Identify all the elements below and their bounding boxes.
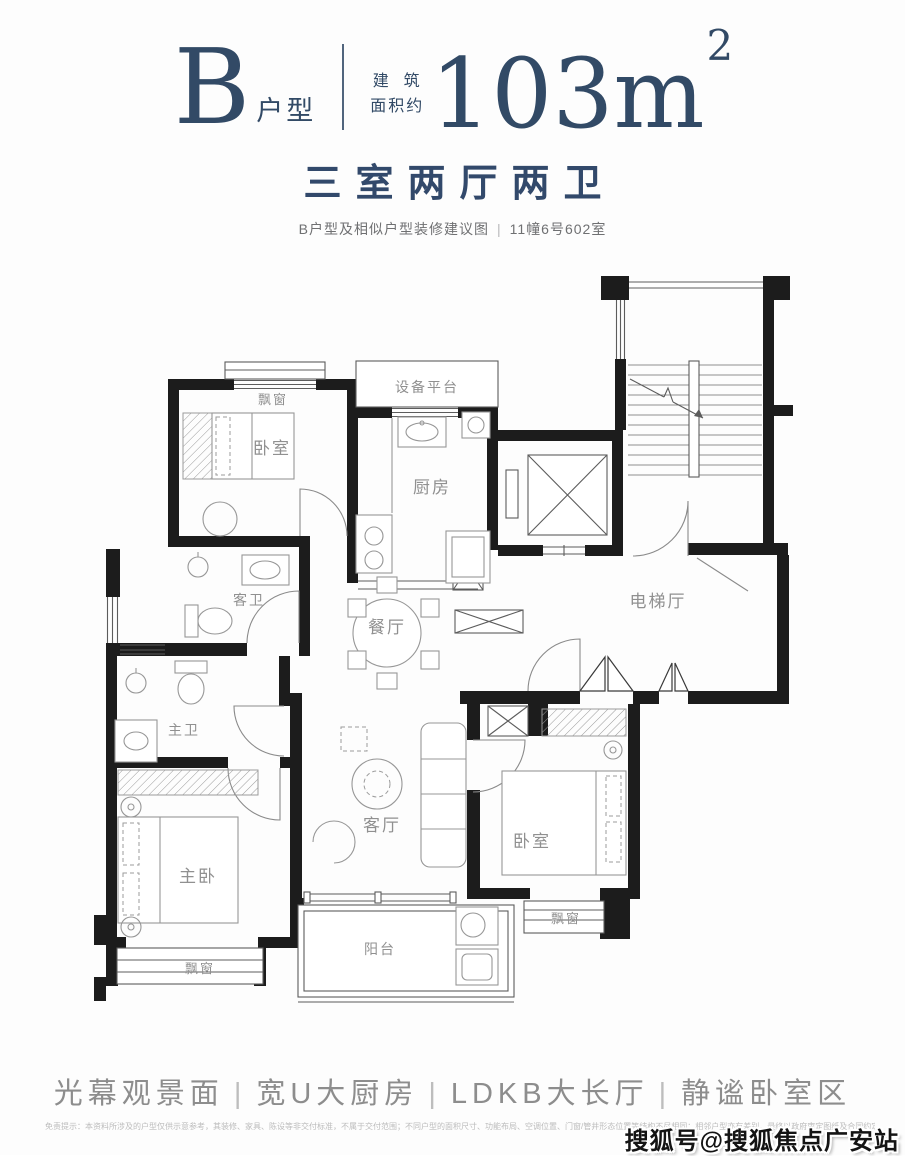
area-block: 建 筑 面积约 103m2 bbox=[370, 55, 731, 134]
chair-tl bbox=[203, 502, 237, 536]
wardrobe-tl bbox=[183, 413, 212, 479]
room-label-master-bed: 主卧 bbox=[179, 867, 217, 886]
watermark-sohu: 搜狐号@搜狐焦点广安站 bbox=[625, 1121, 899, 1156]
area-prefix: 建 筑 面积约 bbox=[370, 70, 424, 120]
tagline-item: 静谧卧室区 bbox=[681, 1078, 851, 1110]
room-label-bedroom-tl: 卧室 bbox=[253, 439, 291, 458]
bed-master bbox=[118, 817, 238, 923]
area-superscript: 2 bbox=[706, 21, 733, 70]
armchair bbox=[313, 821, 355, 863]
floor-plan: 飘窗 卧室 设备平台 厨房 客卫 餐厅 电梯厅 主卫 主卧 客厅 卧室 飘窗 飘… bbox=[0, 268, 905, 1015]
bed-right bbox=[502, 771, 626, 875]
wardrobe-right bbox=[542, 709, 626, 736]
tagline-divider: | bbox=[418, 1078, 451, 1110]
fridge bbox=[446, 531, 490, 583]
boiler bbox=[462, 412, 490, 438]
room-label-equipment-platform: 设备平台 bbox=[395, 379, 459, 395]
unit-type-block: B 户型 bbox=[174, 42, 316, 134]
room-label-balcony: 阳台 bbox=[364, 941, 396, 957]
room-label-elevator-hall: 电梯厅 bbox=[630, 592, 687, 611]
room-label-kitchen: 厨房 bbox=[413, 478, 451, 497]
room-label-dining: 餐厅 bbox=[368, 618, 406, 637]
area-value: 103m2 bbox=[430, 55, 731, 134]
tagline-divider: | bbox=[224, 1078, 257, 1110]
tagline-item: 宽U大厨房 bbox=[256, 1078, 418, 1110]
plan-header: B 户型 建 筑 面积约 103m2 三室两厅两卫 B户型及相似户型装修建议图|… bbox=[0, 42, 905, 239]
ac-unit-icon bbox=[121, 797, 141, 817]
tagline-item: 光幕观景面 bbox=[54, 1078, 224, 1110]
toilet-master-tank bbox=[175, 661, 207, 673]
coffee-table bbox=[352, 759, 402, 809]
shower-guest bbox=[188, 557, 208, 577]
room-label-bay-bl: 飘窗 bbox=[185, 961, 215, 976]
wardrobe-master bbox=[118, 770, 258, 795]
vanity-master bbox=[115, 720, 157, 762]
room-label-master-bath: 主卫 bbox=[168, 722, 200, 738]
toilet-guest-tank bbox=[185, 605, 198, 637]
header-divider bbox=[342, 44, 344, 130]
staircase bbox=[628, 361, 762, 477]
unit-suffix: 户型 bbox=[256, 89, 316, 128]
unit-letter: B bbox=[174, 42, 250, 134]
tagline-divider: | bbox=[649, 1078, 682, 1110]
area-prefix-line1: 建 筑 bbox=[370, 70, 424, 95]
area-prefix-line2: 面积约 bbox=[370, 95, 424, 120]
room-label-bedroom-r: 卧室 bbox=[513, 832, 551, 851]
subtitle-line: B户型及相似户型装修建议图|11幢6号602室 bbox=[0, 219, 905, 239]
room-label-bay-tl: 飘窗 bbox=[258, 392, 288, 407]
subtitle-left: B户型及相似户型装修建议图 bbox=[299, 221, 489, 237]
side-chair bbox=[341, 727, 367, 751]
stove bbox=[356, 515, 392, 573]
subtitle-right: 11幢6号602室 bbox=[510, 221, 607, 237]
tagline-item: LDKB大长厅 bbox=[451, 1078, 649, 1110]
layout-title: 三室两厅两卫 bbox=[0, 152, 905, 207]
laundry-sink bbox=[456, 907, 498, 945]
header-row: B 户型 建 筑 面积约 103m2 bbox=[0, 42, 905, 134]
room-label-living: 客厅 bbox=[363, 816, 401, 835]
ac-unit-icon bbox=[604, 741, 622, 759]
sofa bbox=[421, 723, 466, 867]
room-label-guest-bath: 客卫 bbox=[233, 592, 265, 608]
shower-master bbox=[126, 673, 146, 693]
page-background: B 户型 建 筑 面积约 103m2 三室两厅两卫 B户型及相似户型装修建议图|… bbox=[0, 0, 905, 1155]
elevator-shaft bbox=[506, 455, 607, 535]
selling-points-tagline: 光幕观景面|宽U大厨房|LDKB大长厅|静谧卧室区 bbox=[0, 1070, 905, 1112]
subtitle-divider: | bbox=[489, 221, 510, 237]
sink-guest bbox=[242, 555, 289, 585]
room-label-bay-br: 飘窗 bbox=[551, 911, 581, 926]
